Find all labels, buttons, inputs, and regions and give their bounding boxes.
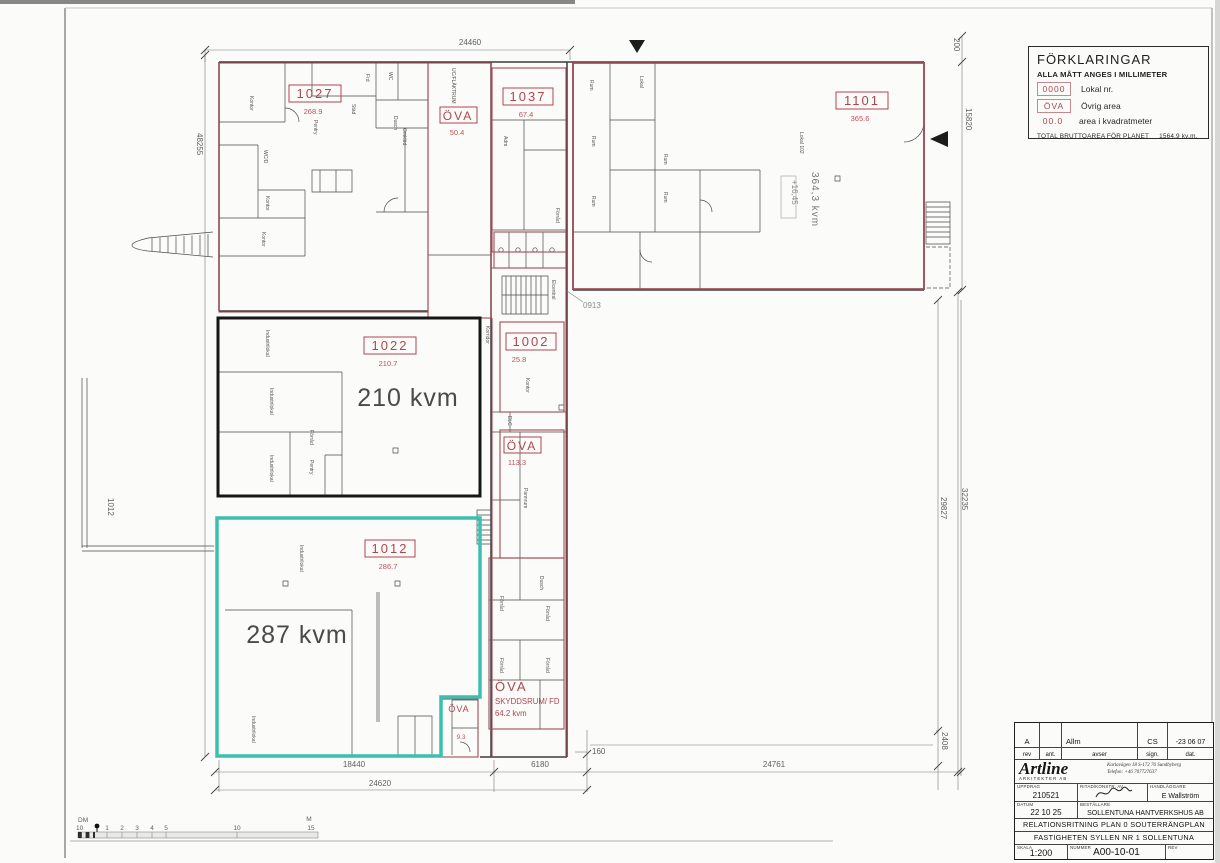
dimension-lines xyxy=(201,32,966,794)
firm-address-2: Telefon: +46 707727637 xyxy=(1107,769,1211,776)
legend-item-lokal: 0000 Lokal nr. xyxy=(1037,82,1200,96)
tiny-room-label: Rum xyxy=(590,136,596,147)
dim-bottom-160: 160 xyxy=(592,747,606,756)
svg-text:1002: 1002 xyxy=(513,334,550,349)
ova-labels: ÖVA 50.4 ÖVA 113.3 ÖVA 9.3 ÖVA SKYDDSRUM… xyxy=(440,107,560,741)
property-name: FASTIGHETEN SYLLEN NR 1 SOLLENTUNA xyxy=(1015,833,1213,842)
area-note-287kvm: 287 kvm xyxy=(246,621,347,649)
handlaggare-label: HANDLÄGGARE xyxy=(1150,784,1186,789)
legend-symbol-0000: 0000 xyxy=(1037,82,1071,96)
svg-text:DM: DM xyxy=(78,817,88,824)
tiny-room-label: Förråd xyxy=(498,658,505,673)
room-label-1037: 1037 67.4 xyxy=(503,88,553,119)
room-label-1101: 1101 365.6 xyxy=(836,92,888,123)
svg-text:2: 2 xyxy=(120,825,124,832)
legend-title: FÖRKLARINGAR xyxy=(1037,52,1200,67)
svg-text:1027: 1027 xyxy=(297,86,334,101)
svg-text:1: 1 xyxy=(105,825,109,832)
dim-right-32235: 32235 xyxy=(960,488,969,511)
svg-text:5: 5 xyxy=(164,825,168,832)
entrance-arrow-right-icon xyxy=(930,131,948,147)
rev-header-sign: sign. xyxy=(1138,752,1167,758)
dimension-labels: 24460 48255 200 15820 32235 29827 18440 … xyxy=(106,38,973,788)
svg-text:15: 15 xyxy=(307,825,315,832)
svg-text:113.3: 113.3 xyxy=(508,458,526,467)
dim-bottom-24620: 24620 xyxy=(369,779,392,788)
legend-label-area: area i kvadratmeter xyxy=(1079,116,1152,126)
tiny-room-label: Lokal 102 xyxy=(798,132,804,154)
svg-text:1101: 1101 xyxy=(844,93,880,108)
tiny-room-label: Omkläd xyxy=(401,128,407,145)
rev-entry-dat: -23 06 07 xyxy=(1168,739,1213,746)
tiny-room-label: Pentry xyxy=(308,460,314,475)
dim-1012: 1012 xyxy=(106,498,115,516)
dim-bottom-18440: 18440 xyxy=(343,760,366,769)
tiny-room-label: Förråd xyxy=(544,658,551,673)
dim-left: 48255 xyxy=(195,133,204,156)
tiny-room-label: Förråd xyxy=(308,430,315,445)
datum-value: 22 10 25 xyxy=(1015,808,1077,817)
uppdrag-value: 210521 xyxy=(1015,791,1077,800)
room-label-1022: 1022 210.7 xyxy=(364,337,416,368)
tiny-room-label: Dusch xyxy=(538,576,544,590)
tiny-room-label: Frd xyxy=(364,74,370,82)
ova-label-mid: ÖVA 113.3 xyxy=(504,437,541,467)
dim-right-15820: 15820 xyxy=(964,108,973,131)
tiny-room-label: Förråd xyxy=(498,596,505,611)
legend-symbol-area: 00.0 xyxy=(1037,116,1069,126)
svg-text:1012: 1012 xyxy=(372,541,409,556)
rev-header-rev: rev xyxy=(1015,752,1039,758)
room-labels: 1027 268.9 1037 67.4 1101 365.6 1022 210… xyxy=(289,85,888,571)
dim-right-200: 200 xyxy=(952,38,961,52)
tiny-room-label: Elcentral xyxy=(550,280,556,299)
tiny-room-label: WC xyxy=(387,72,393,81)
legend-item-ova: ÖVA Övrig area xyxy=(1037,99,1200,113)
area-note-210kvm: 210 kvm xyxy=(357,384,458,412)
tiny-room-label: Industrilokal xyxy=(264,330,270,357)
scale-bar: DM 10 1 2 3 4 5 10 M 15 xyxy=(76,816,318,838)
tiny-room-label: Förråd xyxy=(554,208,561,223)
tiny-room-label: Korridor xyxy=(484,326,490,344)
svg-text:SKYDDSRUM/ FD: SKYDDSRUM/ FD xyxy=(495,697,560,706)
svg-text:ÖVA: ÖVA xyxy=(443,109,473,123)
datum-label: DATUM xyxy=(1017,802,1033,807)
tiny-room-label: Städ xyxy=(350,104,356,115)
dim-bottom-24761: 24761 xyxy=(763,760,786,769)
rev-header-ant: ant. xyxy=(1040,752,1061,758)
title-block: A Allm CS -23 06 07 rev ant. avser sign.… xyxy=(1014,722,1214,860)
legend-label-lokal: Lokal nr. xyxy=(1081,84,1113,94)
legend-note: ALLA MÅTT ANGES I MILLIMETER xyxy=(1037,70,1200,79)
firm-sub: ARKITEKTER AB xyxy=(1019,776,1101,781)
svg-text:365.6: 365.6 xyxy=(851,114,870,123)
nummer-value: A00-10-01 xyxy=(1068,847,1165,858)
svg-text:+16,45: +16,45 xyxy=(790,180,799,205)
level-marker: +16,45 xyxy=(781,176,799,218)
dim-top: 24460 xyxy=(459,38,482,47)
rev-header-avser: avser xyxy=(1062,752,1137,758)
tiny-room-label: Dusch xyxy=(392,116,398,130)
tiny-room-label: Industrilokal xyxy=(250,716,256,743)
svg-text:286.7: 286.7 xyxy=(379,562,398,571)
interior-walls xyxy=(82,62,950,755)
svg-text:210.7: 210.7 xyxy=(379,359,398,368)
rev-header-dat: dat. xyxy=(1168,752,1213,758)
note-0913: 0913 xyxy=(583,301,601,310)
svg-text:3: 3 xyxy=(135,825,139,832)
exterior-walls xyxy=(219,62,924,757)
tiny-room-label: ELC xyxy=(506,416,512,426)
skala-value: 1:200 xyxy=(1015,848,1067,858)
svg-text:ÖVA: ÖVA xyxy=(495,679,528,694)
tiny-room-label: Industrilokal xyxy=(298,545,304,572)
firm-logo: Artline xyxy=(1019,761,1101,776)
svg-text:25.8: 25.8 xyxy=(512,355,527,364)
svg-text:10: 10 xyxy=(76,825,84,832)
entrance-arrow-top-icon xyxy=(629,40,645,53)
area-note-handwritten: 364,3 kvm xyxy=(809,172,820,227)
legend-item-area: 00.0 area i kvadratmeter xyxy=(1037,116,1200,126)
dim-right-29827: 29827 xyxy=(939,497,948,520)
svg-text:10: 10 xyxy=(233,825,241,832)
svg-text:M: M xyxy=(306,816,311,823)
tiny-room-label: Kontor xyxy=(260,232,266,247)
tiny-room-label: Kontor xyxy=(524,378,530,393)
tiny-room-label: Kontor xyxy=(248,96,254,111)
uppdrag-label: UPPDRAG xyxy=(1017,784,1040,789)
ova-label-skyddsrum: ÖVA SKYDDSRUM/ FD 64.2 kvm xyxy=(495,679,560,718)
handlaggare-value: E Wallström xyxy=(1148,793,1213,800)
tiny-room-label: WC/D xyxy=(262,150,268,164)
tiny-room-label: Adm xyxy=(502,136,508,146)
tiny-room-label: Lokal xyxy=(638,76,644,88)
ova-label-small: ÖVA 9.3 xyxy=(448,704,469,741)
tiny-room-label: Industrilokal xyxy=(268,455,274,482)
tiny-room-label: UC/FLÄKTRUM xyxy=(450,68,457,104)
svg-text:268.9: 268.9 xyxy=(304,107,323,116)
tiny-room-label: Kontor xyxy=(264,196,270,211)
svg-text:1037: 1037 xyxy=(510,89,547,104)
rev-entry-avser: Allm xyxy=(1062,737,1137,746)
svg-text:50.4: 50.4 xyxy=(450,128,465,137)
room-label-1002: 1002 25.8 xyxy=(506,333,556,364)
svg-text:ÖVA: ÖVA xyxy=(507,439,537,453)
drawing-sheet: 1027 268.9 1037 67.4 1101 365.6 1022 210… xyxy=(0,0,1220,863)
rev-entry-sign: CS xyxy=(1138,737,1167,746)
svg-text:67.4: 67.4 xyxy=(519,110,534,119)
room-label-1027: 1027 268.9 xyxy=(289,85,341,116)
svg-text:64.2 kvm: 64.2 kvm xyxy=(495,709,527,718)
legend-symbol-ova: ÖVA xyxy=(1037,99,1071,113)
dim-bottom-6180: 6180 xyxy=(531,760,549,769)
tiny-room-label: Rum xyxy=(590,196,596,207)
bestallare-value: SOLLENTUNA HANTVERKSHUS AB xyxy=(1078,810,1213,817)
legend-box: FÖRKLARINGAR ALLA MÅTT ANGES I MILLIMETE… xyxy=(1028,46,1209,139)
dim-2408: 2408 xyxy=(940,732,949,750)
tiny-room-label: Förråd xyxy=(544,606,551,621)
svg-text:ÖVA: ÖVA xyxy=(448,704,469,714)
rev-entry-rev: A xyxy=(1015,737,1039,746)
lokal-outlines-red xyxy=(219,63,924,757)
bestallare-label: BESTÄLLARE xyxy=(1080,802,1110,807)
ova-label-uc-flaktrum: ÖVA 50.4 xyxy=(440,107,477,137)
tiny-room-label: Rum xyxy=(588,80,594,91)
svg-text:1022: 1022 xyxy=(372,338,409,353)
tiny-room-label: Pentry xyxy=(312,120,318,135)
firm-address-1: Karlavägen 18 S-172 76 Sundbyberg xyxy=(1107,762,1211,769)
tiny-room-label: Pannrum xyxy=(522,488,528,508)
tiny-room-label: Industrilokal xyxy=(268,388,274,415)
legend-total: TOTAL BRUTTOAREA FÖR PLANET1564,9 kv.m. xyxy=(1037,133,1200,140)
tiny-room-label: Rum xyxy=(662,192,668,203)
legend-label-ova: Övrig area xyxy=(1081,101,1121,111)
signature-scribble xyxy=(1094,786,1134,800)
rev-label: REV xyxy=(1168,845,1178,850)
room-label-1012: 1012 286.7 xyxy=(365,540,415,571)
svg-text:9.3: 9.3 xyxy=(456,734,465,741)
drawing-type: RELATIONSRITNING PLAN 0 SOUTERRÄNGPLAN xyxy=(1015,820,1213,829)
tiny-room-label: Rum xyxy=(662,154,668,165)
svg-text:4: 4 xyxy=(150,825,154,832)
